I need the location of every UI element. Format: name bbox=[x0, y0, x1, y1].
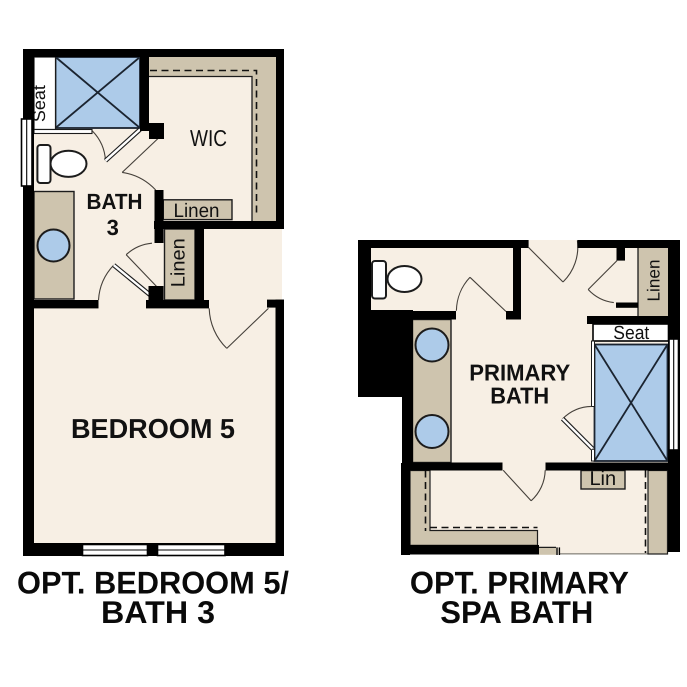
svg-text:3: 3 bbox=[107, 215, 119, 240]
svg-text:SPA BATH: SPA BATH bbox=[440, 594, 593, 630]
svg-text:BATH: BATH bbox=[87, 189, 143, 214]
svg-text:Linen: Linen bbox=[644, 260, 664, 302]
svg-text:Lin: Lin bbox=[589, 468, 616, 490]
svg-text:Linen: Linen bbox=[174, 200, 220, 222]
svg-text:Seat: Seat bbox=[613, 323, 650, 344]
svg-text:Linen: Linen bbox=[168, 238, 190, 287]
svg-text:BATH 3: BATH 3 bbox=[101, 594, 215, 630]
svg-text:WIC: WIC bbox=[190, 125, 227, 151]
svg-text:BATH: BATH bbox=[490, 383, 549, 409]
svg-text:BEDROOM 5: BEDROOM 5 bbox=[71, 413, 235, 444]
